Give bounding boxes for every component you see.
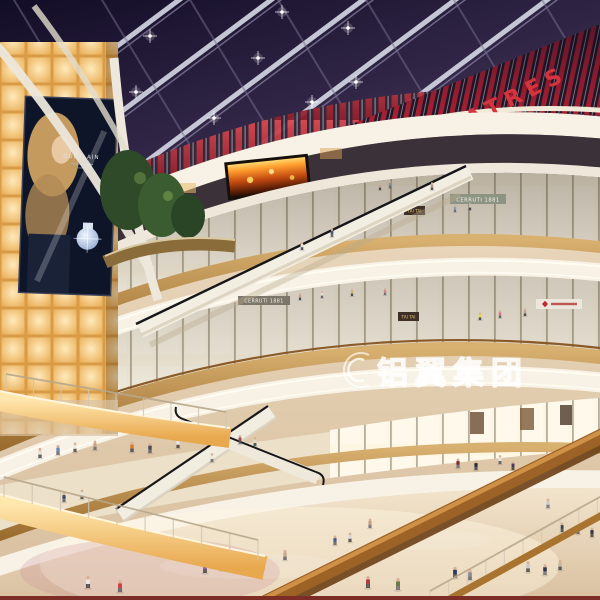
store-sign-cerruti-upper-text: CERRUTI 1881 [456, 198, 499, 204]
store-sign-red-diamond [536, 299, 582, 309]
mall-atrium-render: THEATRES CERRUTI 1881 TAI TAI [0, 0, 600, 600]
bottom-edge-strip [0, 596, 600, 600]
scene-canvas: THEATRES CERRUTI 1881 TAI TAI [0, 0, 600, 600]
store-sign-taitai-lower-text: TAI TAI [401, 315, 416, 320]
